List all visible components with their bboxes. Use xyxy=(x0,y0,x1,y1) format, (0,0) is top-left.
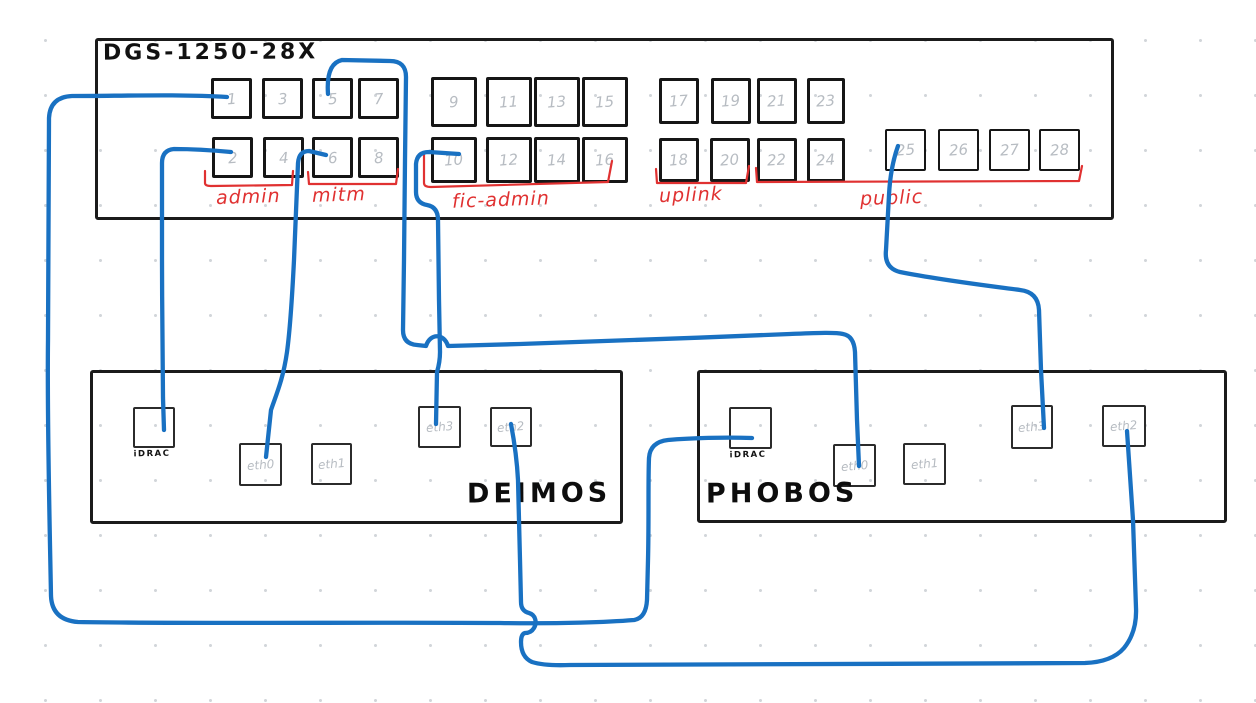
bracket-public[interactable] xyxy=(756,166,1082,182)
cable-layer xyxy=(0,0,1256,703)
cable-deimos-eth2-phobos-eth2[interactable] xyxy=(511,424,1136,665)
bracket-mitm[interactable] xyxy=(308,169,398,184)
cable-port1-phobos-idrac[interactable] xyxy=(48,95,752,623)
cable-port5-phobos-eth0[interactable] xyxy=(328,60,859,466)
bracket-uplink[interactable] xyxy=(656,166,749,183)
cable-port2-deimos-idrac[interactable] xyxy=(162,149,231,430)
cable-port6-deimos-eth0[interactable] xyxy=(266,151,326,457)
bracket-fic-admin[interactable] xyxy=(424,155,612,187)
cable-port10-deimos-eth3[interactable] xyxy=(416,152,459,424)
whiteboard-canvas[interactable]: DGS-1250-28X 1 3 5 7 2 4 6 8 9 11 13 15 … xyxy=(0,0,1256,703)
cable-port25-phobos-eth3[interactable] xyxy=(886,146,1044,428)
bracket-admin[interactable] xyxy=(205,171,293,186)
